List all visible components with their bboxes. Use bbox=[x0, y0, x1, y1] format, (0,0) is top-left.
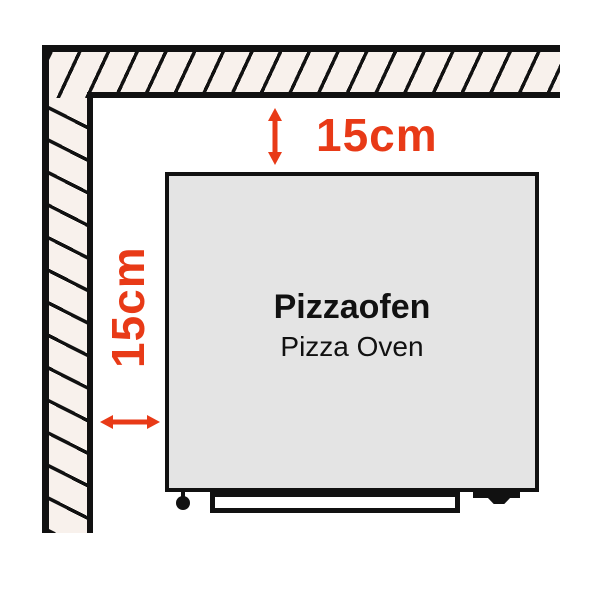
oven-base-tray bbox=[210, 492, 460, 513]
horizontal-double-arrow-icon bbox=[100, 414, 160, 430]
oven-left-foot-wheel bbox=[176, 496, 190, 510]
left-clearance-label: 15cm bbox=[105, 248, 151, 368]
oven-subtitle: Pizza Oven bbox=[274, 331, 431, 363]
left-wall-hatched bbox=[42, 45, 93, 533]
vertical-double-arrow-icon bbox=[267, 108, 283, 165]
oven-right-foot bbox=[487, 497, 511, 504]
installation-clearance-diagram: Pizzaofen Pizza Oven 15cm 15cm bbox=[0, 0, 600, 600]
top-clearance-label: 15cm bbox=[316, 112, 438, 158]
oven-title: Pizzaofen bbox=[274, 288, 431, 327]
oven-label-group: Pizzaofen Pizza Oven bbox=[274, 288, 431, 363]
top-wall-inner-edge bbox=[93, 92, 560, 98]
left-wall-inner-edge bbox=[87, 92, 93, 533]
top-wall-hatched bbox=[42, 45, 560, 98]
pizza-oven-body: Pizzaofen Pizza Oven bbox=[165, 172, 539, 492]
